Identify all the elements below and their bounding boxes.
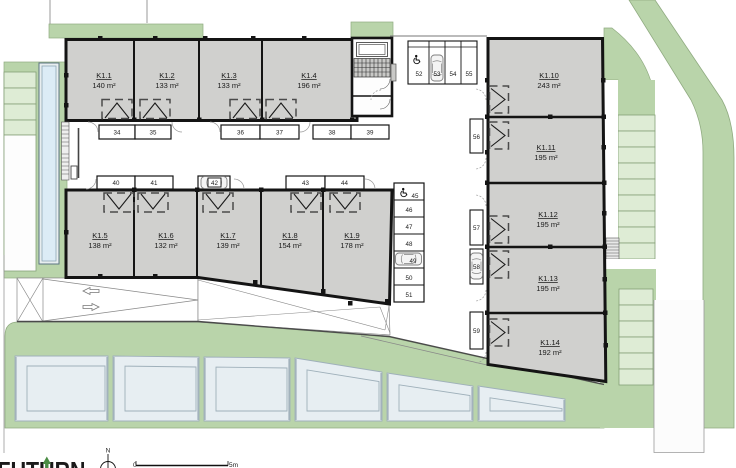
svg-text:48: 48: [406, 241, 413, 248]
svg-text:FUTURN: FUTURN: [0, 456, 86, 468]
svg-text:58: 58: [473, 264, 480, 271]
svg-text:36: 36: [237, 130, 244, 137]
svg-text:K1.1: K1.1: [96, 71, 111, 80]
svg-text:192 m²: 192 m²: [538, 348, 562, 357]
svg-text:K1.6: K1.6: [158, 231, 173, 240]
svg-text:178 m²: 178 m²: [340, 241, 364, 250]
svg-text:54: 54: [450, 71, 457, 78]
svg-text:49: 49: [410, 258, 417, 265]
svg-text:243 m²: 243 m²: [537, 81, 561, 90]
svg-text:56: 56: [473, 134, 480, 141]
svg-text:133 m²: 133 m²: [155, 81, 179, 90]
svg-text:0: 0: [133, 462, 137, 468]
svg-text:K1.13: K1.13: [538, 274, 558, 283]
svg-text:52: 52: [416, 71, 423, 78]
svg-text:139 m²: 139 m²: [216, 241, 240, 250]
svg-text:5m: 5m: [229, 462, 238, 468]
svg-text:K1.11: K1.11: [536, 143, 555, 152]
svg-text:39: 39: [367, 130, 374, 137]
svg-text:59: 59: [473, 328, 480, 335]
svg-text:154 m²: 154 m²: [278, 241, 302, 250]
svg-text:K1.14: K1.14: [540, 338, 560, 347]
svg-text:43: 43: [302, 180, 309, 187]
svg-text:138 m²: 138 m²: [88, 241, 112, 250]
svg-text:53: 53: [434, 71, 441, 78]
svg-text:196 m²: 196 m²: [297, 81, 321, 90]
svg-text:35: 35: [150, 130, 157, 137]
svg-text:195 m²: 195 m²: [536, 284, 560, 293]
svg-text:45: 45: [412, 193, 419, 200]
svg-text:133 m²: 133 m²: [217, 81, 241, 90]
svg-text:34: 34: [114, 130, 121, 137]
svg-text:K1.12: K1.12: [538, 210, 558, 219]
svg-text:K1.2: K1.2: [159, 71, 174, 80]
svg-text:40: 40: [113, 180, 120, 187]
svg-text:K1.5: K1.5: [92, 231, 107, 240]
svg-text:K1.9: K1.9: [344, 231, 359, 240]
svg-text:132 m²: 132 m²: [154, 241, 178, 250]
svg-text:195 m²: 195 m²: [536, 220, 560, 229]
svg-text:44: 44: [341, 180, 348, 187]
svg-text:46: 46: [406, 207, 413, 214]
svg-text:55: 55: [466, 71, 473, 78]
svg-text:K1.4: K1.4: [301, 71, 316, 80]
svg-text:51: 51: [406, 292, 413, 299]
svg-text:41: 41: [151, 180, 158, 187]
svg-text:K1.10: K1.10: [539, 71, 559, 80]
svg-text:140 m²: 140 m²: [92, 81, 116, 90]
svg-text:K1.7: K1.7: [220, 231, 235, 240]
svg-text:47: 47: [406, 224, 413, 231]
svg-text:38: 38: [329, 130, 336, 137]
svg-text:195 m²: 195 m²: [534, 153, 558, 162]
svg-text:42: 42: [211, 180, 218, 187]
svg-text:57: 57: [473, 225, 480, 232]
svg-text:37: 37: [276, 130, 283, 137]
svg-text:N: N: [106, 448, 111, 455]
svg-text:K1.8: K1.8: [282, 231, 297, 240]
svg-text:50: 50: [406, 275, 413, 282]
svg-text:K1.3: K1.3: [221, 71, 236, 80]
